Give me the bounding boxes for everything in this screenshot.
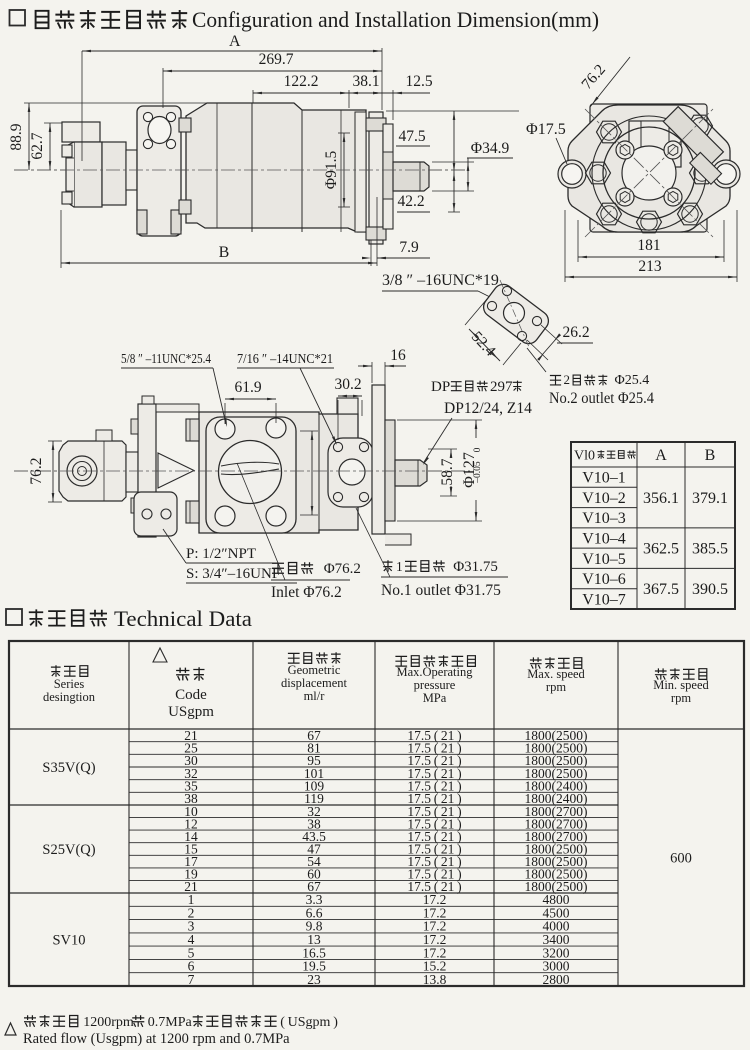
svg-text:Φ31.75: Φ31.75 bbox=[453, 559, 498, 575]
svg-text:600: 600 bbox=[670, 851, 692, 867]
svg-text:USgpm: USgpm bbox=[168, 704, 214, 720]
svg-text:V10–4: V10–4 bbox=[582, 531, 626, 548]
svg-text:62.7: 62.7 bbox=[29, 132, 46, 159]
svg-text:Φ25.4: Φ25.4 bbox=[615, 373, 650, 388]
svg-text:76.2: 76.2 bbox=[578, 61, 609, 93]
svg-text:S25V(Q): S25V(Q) bbox=[42, 842, 95, 858]
svg-text:367.5: 367.5 bbox=[643, 581, 679, 598]
svg-text:Rated flow (Usgpm) at 1200 rpm: Rated flow (Usgpm) at 1200 rpm and 0.7MP… bbox=[23, 1031, 290, 1047]
svg-text:Vl0: Vl0 bbox=[574, 449, 595, 464]
svg-text:38.1: 38.1 bbox=[352, 73, 379, 90]
svg-text:61.9: 61.9 bbox=[234, 379, 261, 396]
svg-text:42.2: 42.2 bbox=[397, 193, 424, 210]
svg-text:V10–3: V10–3 bbox=[582, 510, 626, 527]
svg-text:Series: Series bbox=[54, 677, 85, 691]
svg-text:MPa: MPa bbox=[423, 691, 447, 705]
svg-text:Min. speed: Min. speed bbox=[653, 678, 709, 692]
svg-text:Technical Data: Technical Data bbox=[114, 606, 252, 631]
svg-text:1200rpm: 1200rpm bbox=[83, 1015, 134, 1030]
svg-text:0: 0 bbox=[473, 447, 483, 452]
svg-text:16: 16 bbox=[390, 347, 406, 364]
svg-text:0.7MPa: 0.7MPa bbox=[148, 1015, 193, 1030]
svg-text:58.7: 58.7 bbox=[439, 458, 456, 485]
svg-text:122.2: 122.2 bbox=[284, 73, 319, 90]
svg-text:ml/r: ml/r bbox=[304, 689, 326, 703]
svg-text:Φ34.9: Φ34.9 bbox=[471, 140, 510, 157]
svg-text:A: A bbox=[229, 33, 241, 50]
svg-text:7: 7 bbox=[188, 972, 195, 987]
svg-text:B: B bbox=[705, 447, 716, 464]
svg-text:No.2 outlet Φ25.4: No.2 outlet Φ25.4 bbox=[549, 390, 654, 407]
svg-text:2: 2 bbox=[564, 372, 571, 387]
svg-text:DP: DP bbox=[431, 379, 450, 395]
svg-text:23: 23 bbox=[307, 972, 321, 987]
svg-text:P: 1/2″NPT: P: 1/2″NPT bbox=[186, 546, 256, 562]
svg-text:13.8: 13.8 bbox=[423, 972, 447, 987]
svg-text:7.9: 7.9 bbox=[399, 239, 419, 256]
svg-text:–0.05: –0.05 bbox=[473, 461, 483, 484]
svg-text:Code: Code bbox=[175, 687, 207, 703]
svg-text:3/8 ″ –16UNC*19: 3/8 ″ –16UNC*19 bbox=[382, 272, 499, 289]
svg-text:213: 213 bbox=[638, 258, 662, 275]
svg-text:rpm: rpm bbox=[546, 680, 566, 694]
svg-text:356.1: 356.1 bbox=[643, 490, 679, 507]
svg-text:( USgpm ): ( USgpm ) bbox=[280, 1015, 338, 1030]
svg-text:A: A bbox=[655, 447, 667, 464]
svg-text:SV10: SV10 bbox=[52, 933, 85, 949]
svg-text:V10–6: V10–6 bbox=[582, 571, 626, 588]
svg-text:379.1: 379.1 bbox=[692, 490, 728, 507]
svg-text:S: 3/4″–16UNF: S: 3/4″–16UNF bbox=[186, 566, 280, 582]
svg-text:297: 297 bbox=[490, 379, 513, 395]
svg-text:7/16 ″ –14UNC*21: 7/16 ″ –14UNC*21 bbox=[237, 352, 333, 367]
svg-text:Max. speed: Max. speed bbox=[527, 667, 585, 681]
svg-text:5/8 ″ –11UNC*25.4: 5/8 ″ –11UNC*25.4 bbox=[121, 352, 211, 367]
svg-text:V10–5: V10–5 bbox=[582, 551, 626, 568]
svg-text:Max.Operating: Max.Operating bbox=[396, 665, 473, 679]
svg-text:88.9: 88.9 bbox=[8, 123, 25, 150]
svg-text:2800: 2800 bbox=[543, 972, 570, 987]
svg-text:181: 181 bbox=[637, 237, 660, 254]
svg-text:V10–1: V10–1 bbox=[582, 470, 626, 487]
svg-text:V10–7: V10–7 bbox=[582, 591, 626, 608]
svg-text:362.5: 362.5 bbox=[643, 541, 679, 558]
svg-text:displacement: displacement bbox=[281, 676, 347, 690]
svg-text:12.5: 12.5 bbox=[405, 73, 432, 90]
svg-text:26.2: 26.2 bbox=[562, 324, 589, 341]
svg-text:B: B bbox=[219, 244, 230, 261]
svg-text:V10–2: V10–2 bbox=[582, 490, 626, 507]
svg-text:Configuration and Installation: Configuration and Installation Dimension… bbox=[192, 7, 599, 32]
svg-text:76.2: 76.2 bbox=[28, 457, 45, 484]
svg-text:DP12/24, Z14: DP12/24, Z14 bbox=[444, 400, 532, 417]
svg-text:S35V(Q): S35V(Q) bbox=[42, 760, 95, 776]
svg-text:1: 1 bbox=[396, 559, 403, 574]
svg-text:269.7: 269.7 bbox=[259, 51, 294, 68]
svg-text:385.5: 385.5 bbox=[692, 541, 728, 558]
svg-text:desingtion: desingtion bbox=[43, 690, 96, 704]
svg-text:30.2: 30.2 bbox=[334, 376, 361, 393]
svg-text:Φ76.2: Φ76.2 bbox=[324, 561, 361, 577]
svg-text:47.5: 47.5 bbox=[398, 128, 425, 145]
svg-text:No.1 outlet Φ31.75: No.1 outlet Φ31.75 bbox=[381, 582, 501, 599]
svg-text:390.5: 390.5 bbox=[692, 581, 728, 598]
svg-text:Φ17.5: Φ17.5 bbox=[526, 121, 566, 138]
svg-text:Geometric: Geometric bbox=[288, 663, 341, 677]
svg-text:pressure: pressure bbox=[414, 678, 456, 692]
svg-text:Inlet Φ76.2: Inlet Φ76.2 bbox=[271, 584, 342, 601]
svg-text:rpm: rpm bbox=[671, 691, 691, 705]
